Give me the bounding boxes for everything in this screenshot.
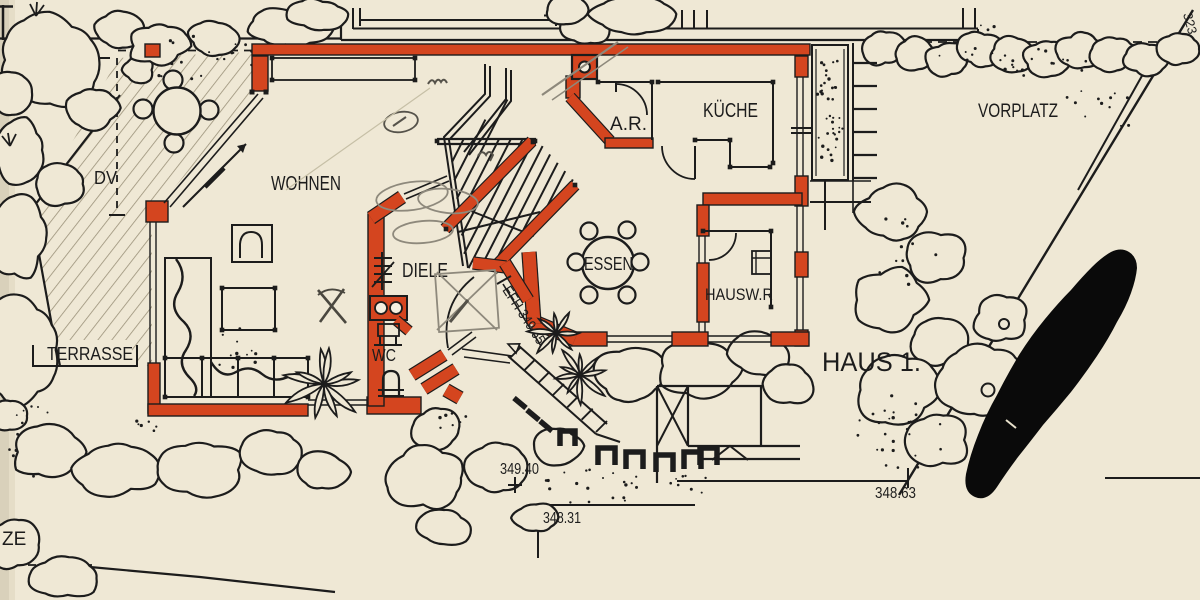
svg-text:349.40: 349.40 (500, 461, 539, 478)
svg-text:VORPLATZ: VORPLATZ (978, 101, 1058, 122)
svg-text:348.31: 348.31 (543, 510, 581, 527)
svg-text:HAUSW.R: HAUSW.R (705, 286, 773, 304)
svg-text:DIELE: DIELE (402, 260, 448, 282)
svg-text:HAUS 1.: HAUS 1. (822, 347, 921, 377)
svg-text:TERRASSE: TERRASSE (47, 344, 133, 364)
svg-text:348.63: 348.63 (875, 485, 916, 502)
svg-text:ESSEN: ESSEN (584, 254, 633, 274)
svg-text:ZE: ZE (2, 529, 26, 550)
svg-text:KÜCHE: KÜCHE (703, 100, 758, 122)
svg-text:A.R.: A.R. (610, 114, 647, 135)
svg-text:WC: WC (372, 345, 396, 365)
svg-text:DV: DV (94, 168, 117, 188)
